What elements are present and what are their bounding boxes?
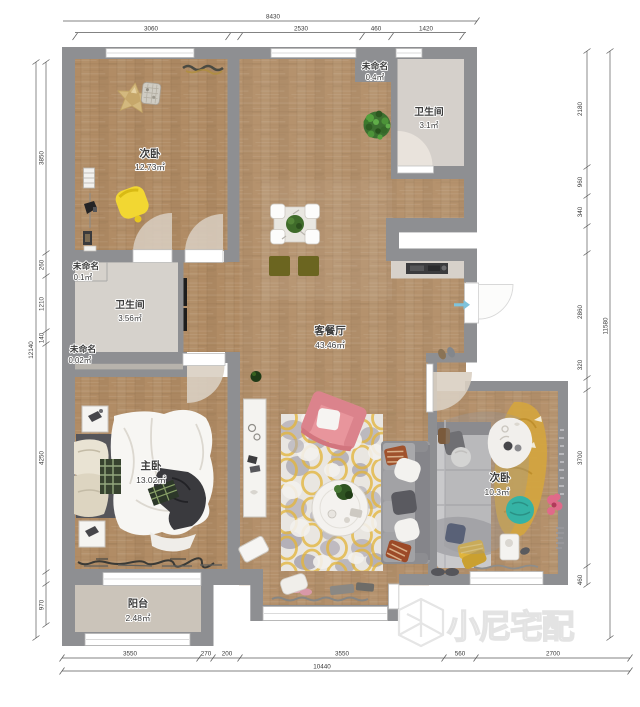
svg-text:3060: 3060 xyxy=(144,26,159,33)
svg-text:0.4㎡: 0.4㎡ xyxy=(366,73,385,82)
svg-text:0.02㎡: 0.02㎡ xyxy=(69,356,92,365)
svg-text:270: 270 xyxy=(201,651,212,658)
svg-text:8430: 8430 xyxy=(266,14,281,21)
svg-text:13.02㎡: 13.02㎡ xyxy=(136,475,166,485)
svg-text:43.46㎡: 43.46㎡ xyxy=(315,340,345,350)
svg-text:12140: 12140 xyxy=(28,341,35,359)
svg-text:3550: 3550 xyxy=(335,651,350,658)
svg-text:3.1㎡: 3.1㎡ xyxy=(419,121,438,130)
svg-text:次卧: 次卧 xyxy=(490,471,511,484)
svg-text:未命名: 未命名 xyxy=(69,343,96,354)
svg-text:460: 460 xyxy=(371,26,382,33)
svg-text:200: 200 xyxy=(222,651,233,658)
svg-text:970: 970 xyxy=(39,599,46,610)
svg-text:340: 340 xyxy=(577,206,584,217)
svg-text:1420: 1420 xyxy=(419,26,434,33)
svg-text:260: 260 xyxy=(39,259,46,270)
svg-text:2860: 2860 xyxy=(577,305,584,320)
svg-text:460: 460 xyxy=(577,574,584,585)
svg-text:2180: 2180 xyxy=(577,102,584,117)
svg-text:1210: 1210 xyxy=(39,297,46,312)
svg-text:560: 560 xyxy=(455,651,466,658)
svg-text:12.73㎡: 12.73㎡ xyxy=(135,162,165,172)
svg-text:2700: 2700 xyxy=(546,651,561,658)
svg-text:客餐厅: 客餐厅 xyxy=(313,324,346,337)
svg-text:0.1㎡: 0.1㎡ xyxy=(74,273,93,282)
svg-text:未命名: 未命名 xyxy=(72,260,99,271)
svg-text:小尼宅配: 小尼宅配 xyxy=(447,608,575,645)
svg-text:960: 960 xyxy=(577,176,584,187)
svg-text:11580: 11580 xyxy=(603,317,610,335)
svg-text:320: 320 xyxy=(577,359,584,370)
svg-text:2.48㎡: 2.48㎡ xyxy=(125,613,151,623)
svg-text:10440: 10440 xyxy=(313,664,331,671)
svg-text:3550: 3550 xyxy=(123,651,138,658)
svg-text:4250: 4250 xyxy=(39,451,46,466)
svg-text:2530: 2530 xyxy=(294,26,309,33)
svg-text:卫生间: 卫生间 xyxy=(115,298,145,311)
svg-text:卫生间: 卫生间 xyxy=(414,105,444,118)
svg-text:3700: 3700 xyxy=(577,451,584,466)
svg-text:阳台: 阳台 xyxy=(128,597,148,610)
svg-text:140: 140 xyxy=(39,332,46,343)
svg-text:主卧: 主卧 xyxy=(141,459,162,472)
svg-text:未命名: 未命名 xyxy=(361,60,388,71)
svg-text:10.3㎡: 10.3㎡ xyxy=(484,487,510,497)
svg-text:3850: 3850 xyxy=(39,151,46,166)
svg-text:3.56㎡: 3.56㎡ xyxy=(118,314,142,323)
svg-text:次卧: 次卧 xyxy=(140,147,161,160)
